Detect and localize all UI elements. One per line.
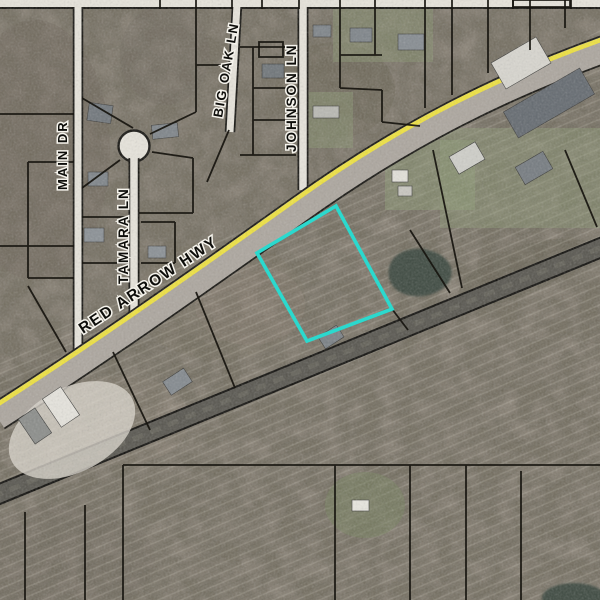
aerial-basemap: MAIN DR TAMARA LN BIG OAK LN JOHNSON LN … (0, 0, 600, 600)
street-label-tamara-ln: TAMARA LN (116, 187, 131, 284)
imagery-noise (0, 0, 600, 600)
street-label-main-dr: MAIN DR (55, 120, 70, 190)
map-viewport[interactable]: MAIN DR TAMARA LN BIG OAK LN JOHNSON LN … (0, 0, 600, 600)
street-label-johnson-ln: JOHNSON LN (284, 43, 299, 152)
